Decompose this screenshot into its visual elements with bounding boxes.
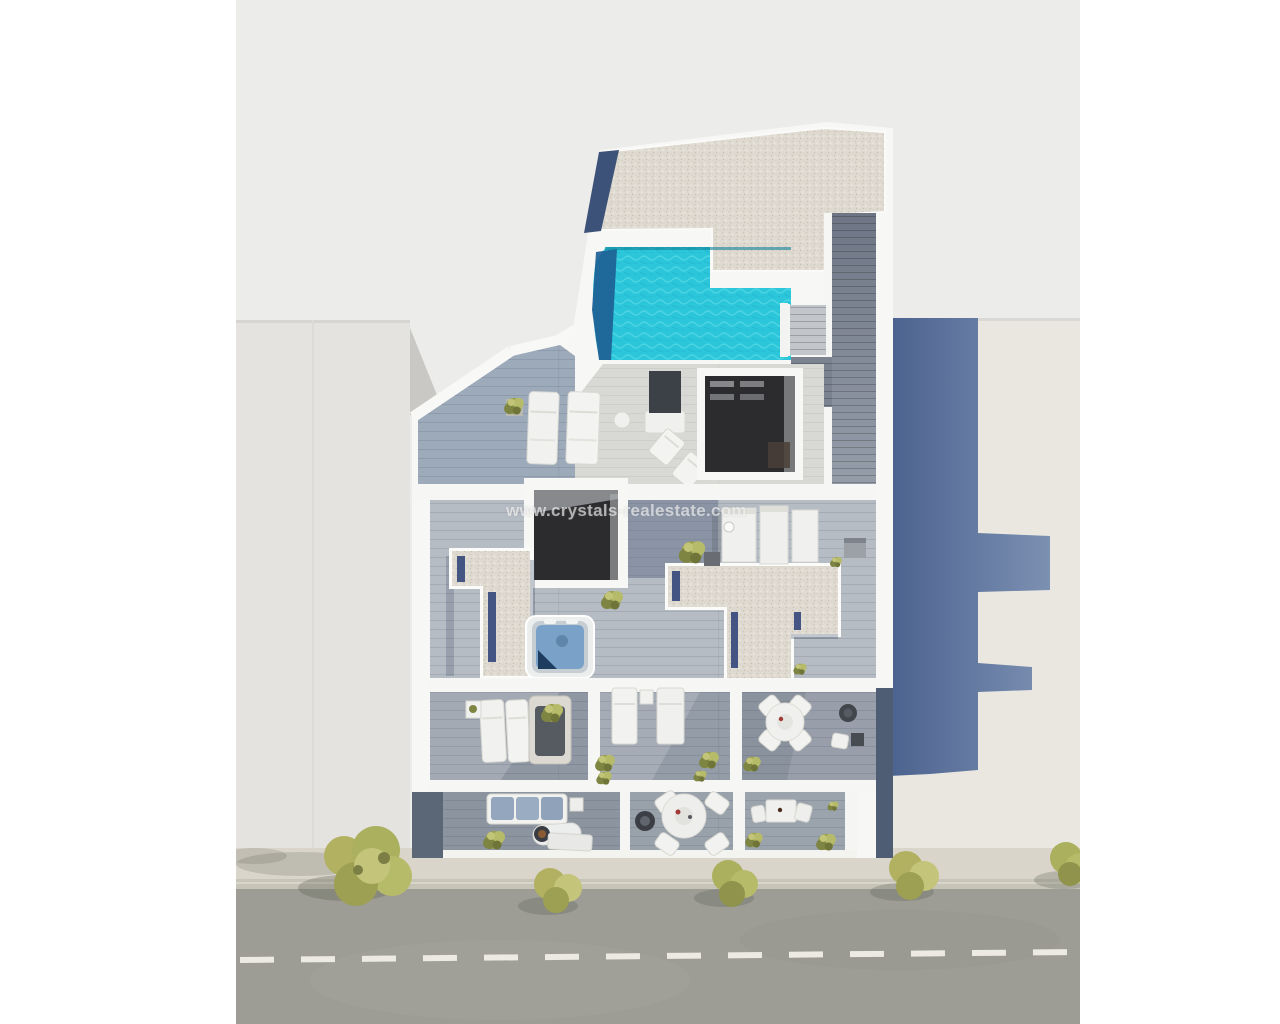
neighbor-building-right: [888, 318, 1080, 848]
sun-lounger: [657, 688, 684, 744]
table-item: [778, 808, 782, 812]
aerial-render-canvas: [0, 0, 1280, 1024]
skylight-slot: [488, 592, 496, 662]
side-table: [570, 798, 583, 811]
stairwell-skylight: [697, 368, 803, 480]
dividing-wall: [733, 792, 745, 854]
tree-shadow: [223, 848, 287, 864]
side-table-dark: [851, 733, 864, 746]
lounge-chair-cushion: [640, 816, 650, 826]
chair: [751, 805, 767, 823]
skylight-slot: [672, 571, 680, 601]
neighbor-left-seam: [312, 320, 314, 848]
terrace-rooms: [430, 678, 876, 784]
dividing-wall: [730, 688, 742, 784]
sun-lounger: [479, 699, 506, 762]
wall-band: [430, 780, 876, 792]
lounge-chair-cushion: [844, 709, 853, 718]
balcony-front-wall: [443, 850, 857, 858]
staircase: [787, 304, 829, 356]
sun-lounger: [566, 391, 600, 464]
skylight-slot: [457, 556, 465, 582]
outdoor-shower: [645, 371, 685, 433]
real-estate-render: www.crystals-realestate.com: [0, 0, 1280, 1024]
hot-tub-jacuzzi: [526, 616, 594, 678]
chair: [831, 733, 849, 750]
courtyard-skylight: [524, 478, 628, 588]
neighbor-left-roof: [236, 320, 410, 848]
sun-lounger: [527, 391, 559, 464]
west-alley-shadow: [412, 792, 443, 858]
wall-band: [412, 484, 876, 500]
sun-lounger: [505, 699, 530, 762]
skylight-slot: [794, 612, 801, 630]
balconies: [430, 771, 876, 858]
road-blotch: [310, 940, 690, 1020]
balcony-sofa: [487, 794, 567, 824]
side-stool: [614, 412, 630, 428]
dividing-wall: [620, 792, 630, 854]
grill-top: [538, 830, 546, 838]
walkway-board-lines: [832, 213, 876, 505]
side-table: [640, 690, 653, 704]
east-alley-shadow: [876, 688, 893, 858]
road-blotch: [740, 910, 1060, 970]
skylight-slot: [731, 612, 738, 668]
neighbor-left-edge: [236, 320, 410, 323]
roof-edge-shadow: [791, 634, 838, 639]
pool-inner-shadow: [605, 247, 791, 250]
center-roof-section: [412, 478, 876, 688]
sun-lounger: [612, 688, 637, 744]
counter: [548, 833, 593, 851]
dividing-wall: [845, 792, 857, 854]
stair-wall: [780, 303, 788, 357]
plant: [469, 705, 477, 713]
